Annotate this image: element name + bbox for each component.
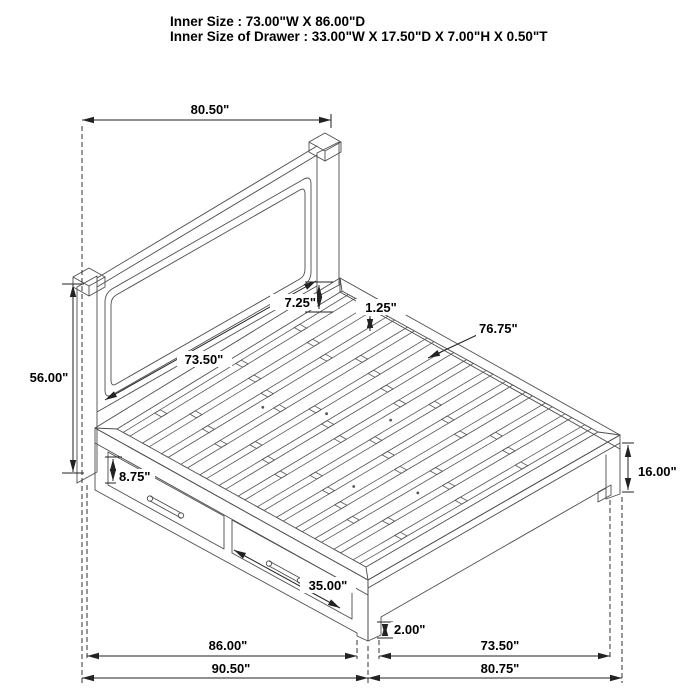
- footboard: [368, 435, 620, 641]
- headboard-left-cap: [73, 268, 105, 296]
- dim-label-headboard-panel-width: 73.50": [185, 352, 224, 367]
- dim-label-headboard-width: 80.50": [191, 102, 230, 117]
- dim-label-headboard-height: 56.00": [30, 370, 69, 385]
- dim-label-drawer-face-width: 35.00": [309, 578, 348, 593]
- screw-hole-dot: [261, 406, 264, 409]
- corner-leg-right-pad: [598, 485, 611, 502]
- deck-corner-joints: [95, 278, 620, 580]
- dim-label-slat-length: 76.75": [479, 321, 518, 336]
- side-rail-face: [95, 428, 368, 641]
- screw-hole-dot: [352, 485, 355, 488]
- headboard-left-post: [77, 276, 97, 483]
- header-line-2: Inner Size of Drawer : 33.00"W X 17.50"D…: [170, 29, 548, 44]
- dim-label-foot-width-overall: 80.75": [481, 661, 520, 676]
- deck-inner-rim: [117, 291, 598, 567]
- side-rail-drawers: [95, 428, 368, 641]
- dim-label-floor-clearance: 2.00": [394, 622, 425, 637]
- bed-drawing: [73, 133, 620, 641]
- dim-label-slat-thickness: 1.25": [365, 300, 396, 315]
- screw-hole-dot: [389, 419, 392, 422]
- platform-deck: [95, 278, 620, 580]
- screw-hole-dot: [416, 492, 419, 495]
- footboard-face: [368, 435, 620, 641]
- screw-hole-dot: [325, 412, 328, 415]
- drawer-2-handle: [266, 561, 302, 583]
- dim-label-drawer-face-height: 8.75": [119, 469, 150, 484]
- headboard-top-rail: [97, 146, 317, 287]
- bed-dimension-diagram: Inner Size : 73.00"W X 86.00"D Inner Siz…: [0, 0, 700, 700]
- header-line-1: Inner Size : 73.00"W X 86.00"D: [170, 14, 365, 29]
- dim-label-headboard-to-deck-gap: 7.25": [285, 295, 316, 310]
- drawer-1: [108, 452, 224, 549]
- footboard-lip: [368, 443, 620, 588]
- dim-label-side-length-inner: 86.00": [209, 638, 248, 653]
- dim-label-foot-width-inner: 73.50": [481, 638, 520, 653]
- dim-label-footboard-height: 16.00": [638, 464, 677, 479]
- deck-outer-rim: [95, 278, 620, 580]
- headboard-right-post: [317, 142, 339, 297]
- dim-label-side-length-overall: 90.50": [212, 661, 251, 676]
- drawer-1-handle: [147, 496, 183, 518]
